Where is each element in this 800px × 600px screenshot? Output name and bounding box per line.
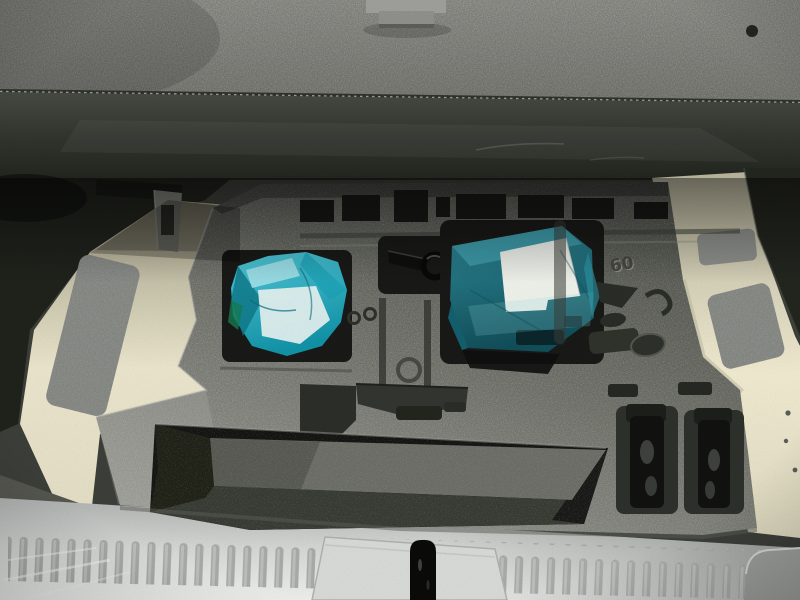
vignette <box>0 0 800 600</box>
trunk-scene: 60 60 <box>0 0 800 600</box>
trunk-photo: 60 60 <box>0 0 800 600</box>
